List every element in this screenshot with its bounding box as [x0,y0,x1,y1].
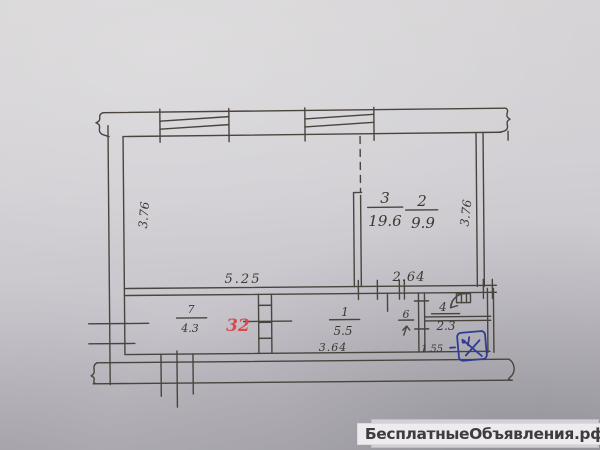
wall-break-right [499,108,510,132]
blue-stamp-icon [449,331,487,362]
room1-area: 5.5 [333,324,352,338]
room4-area: 2.3 [435,319,455,333]
dim-small-width: 1.55 [421,344,443,355]
watermark-text: БесплатныеОбъявления.рф [357,423,600,445]
dim-room2-width: 2.64 [392,270,426,285]
floor-plan-drawing: 3 19.6 2 9.9 3.76 3.76 5.25 2.64 7 4.3 3… [0,0,600,450]
wall-break-left [96,113,109,137]
wall-break-bottom-right [509,359,515,380]
bottom-exterior-wall [91,348,515,408]
room1-number: 1 [341,305,349,319]
dim-left-height: 3.76 [136,201,152,229]
dim-right-height: 3.76 [457,199,474,228]
dim-hall-width: 3.64 [319,341,348,354]
partition-room3-room2 [353,136,362,286]
room3-area: 19.6 [368,212,402,230]
window-room3 [160,109,229,143]
room2-area: 9.9 [411,214,435,232]
top-exterior-wall [96,108,510,144]
room7-number: 7 [188,303,195,316]
dim-room3-width: 5.25 [225,272,262,287]
partition-room7-room1 [243,294,292,353]
left-exterior-wall [87,125,149,385]
red-total-area-note: 32 [226,316,250,336]
left-wall-tick-1 [89,323,149,324]
door-arc-icon [450,294,465,308]
wall-break-bottom-left [91,363,97,384]
room6-arrow-icon [403,326,410,335]
room4-number: 4 [438,300,447,314]
paper-photo: 3 19.6 2 9.9 3.76 3.76 5.25 2.64 7 4.3 3… [0,0,600,450]
room6-number: 6 [403,308,410,321]
watermark-strip: БесплатныеОбъявления.рф [371,419,599,448]
room3-number: 3 [380,189,390,207]
right-wall [476,133,484,286]
window-room2 [305,107,374,141]
room7-area: 4.3 [180,322,199,335]
room2-number: 2 [416,192,427,210]
